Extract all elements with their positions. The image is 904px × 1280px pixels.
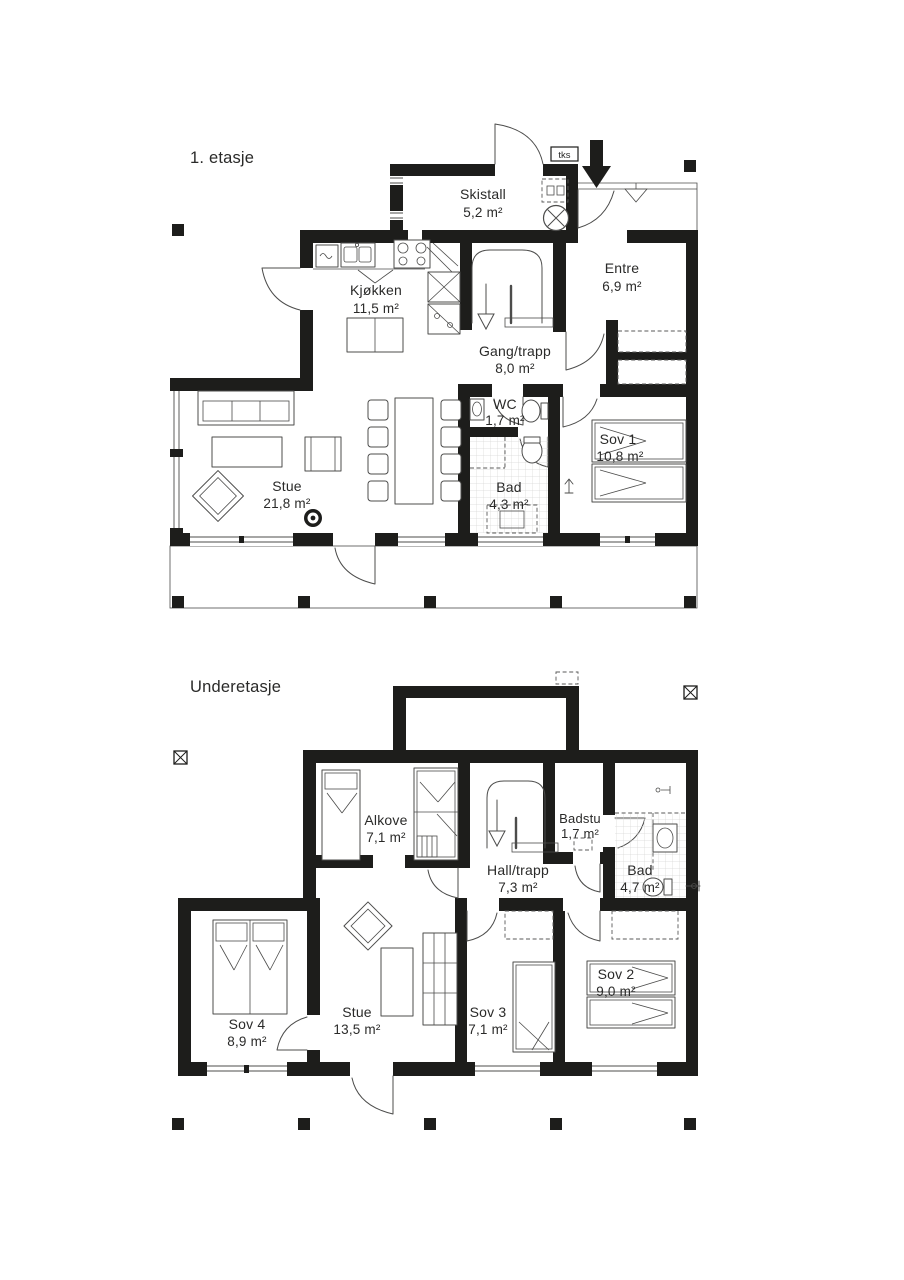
svg-text:Kjøkken: Kjøkken [350,282,402,298]
kitchen-sink-icon [341,243,375,267]
floor2-title: Underetasje [190,678,281,696]
floor2-plan: Underetasje [172,672,700,1130]
room-label-hall: Hall/trapp 7,3 m² [487,862,549,895]
svg-text:10,8 m²: 10,8 m² [596,449,643,464]
svg-text:11,5 m²: 11,5 m² [353,301,399,316]
sov3-bed [513,962,555,1052]
svg-text:13,5 m²: 13,5 m² [333,1022,380,1037]
armchair-icon [344,902,392,950]
svg-text:Gang/trapp: Gang/trapp [479,343,551,359]
sofa-icon [198,391,294,425]
room-label-badstu: Badstu 1,7 m² [559,811,601,841]
svg-text:tks: tks [558,150,570,161]
cabinet-symbol-icon [542,179,568,202]
dining-set [368,398,461,504]
stove-icon [394,240,430,268]
svg-text:Sov 1: Sov 1 [600,431,637,447]
stue-furniture [193,391,461,527]
tks-box: tks [551,147,578,161]
washbasin-icon [653,824,677,852]
floor1-plan: 1. etasje [170,124,698,608]
marker-crossed-square-icon [174,751,187,764]
floor1-entry-porch [578,183,697,230]
stair-down-arrow-icon [489,831,505,846]
entrance-arrow-icon [582,140,611,188]
table-icon [381,948,413,1016]
room-label-sov3: Sov 3 7,1 m² [468,1004,508,1037]
svg-text:21,8 m²: 21,8 m² [263,496,310,511]
svg-text:4,7 m²: 4,7 m² [620,880,660,895]
svg-text:Bad: Bad [627,862,653,878]
floor1-title: 1. etasje [190,149,254,167]
floor1-stairs [472,250,553,329]
floor1-terrace [170,546,697,608]
svg-text:Skistall: Skistall [460,186,506,202]
svg-text:8,9 m²: 8,9 m² [227,1034,267,1049]
svg-text:Stue: Stue [342,1004,372,1020]
tall-cabinets [428,272,460,334]
floor-plan-page: 1. etasje [0,0,904,1280]
svg-text:Bad: Bad [496,479,522,495]
arrow-up-icon [565,479,573,493]
svg-text:Entre: Entre [605,260,639,276]
dashed-marker [556,672,578,684]
coffee-table-icon [212,437,282,467]
floor2-wardrobes [505,911,678,939]
marker-crossed-square-icon [684,686,697,699]
svg-text:7,3 m²: 7,3 m² [498,880,538,895]
svg-text:1,7 m²: 1,7 m² [561,826,600,841]
kitchen-island [347,318,403,352]
svg-text:4,3 m²: 4,3 m² [489,497,529,512]
room-label-stue2: Stue 13,5 m² [333,1004,380,1037]
room-label-wc: WC 1,7 m² [485,396,525,428]
floor2-posts [172,1118,696,1130]
svg-text:Sov 2: Sov 2 [598,966,635,982]
svg-text:9,0 m²: 9,0 m² [596,984,636,999]
room-label-stue1: Stue 21,8 m² [263,478,310,511]
svg-text:Alkove: Alkove [364,812,407,828]
room-label-skistall: Skistall 5,2 m² [460,186,506,220]
room-label-alkove: Alkove 7,1 m² [364,812,407,845]
marker-square-icon [172,224,184,236]
shower-valve-icon [656,786,670,794]
sov4-bed [213,920,287,1014]
shelf-icon [423,933,457,1025]
wood-stove-icon [304,509,322,527]
svg-text:7,1 m²: 7,1 m² [366,830,406,845]
stair-down-arrow-icon [478,314,494,329]
svg-text:6,9 m²: 6,9 m² [602,279,642,294]
fan-icon [544,206,569,231]
svg-text:Stue: Stue [272,478,302,494]
svg-text:WC: WC [493,396,517,412]
svg-text:Sov 4: Sov 4 [229,1016,266,1032]
svg-text:5,2 m²: 5,2 m² [463,205,503,220]
room-label-kjokken: Kjøkken 11,5 m² [350,282,402,316]
floor-plan-drawing: 1. etasje [0,0,904,1280]
svg-text:Sov 3: Sov 3 [470,1004,507,1020]
svg-text:Hall/trapp: Hall/trapp [487,862,549,878]
armchair-icon [193,471,244,522]
svg-text:8,0 m²: 8,0 m² [495,361,535,376]
room-label-gang: Gang/trapp 8,0 m² [479,343,551,376]
marker-square-icon [684,160,696,172]
svg-text:1,7 m²: 1,7 m² [485,413,525,428]
bunk-bed-icon [414,768,458,860]
svg-text:7,1 m²: 7,1 m² [468,1022,508,1037]
side-chair-icon [305,437,341,471]
room-label-sov4: Sov 4 8,9 m² [227,1016,267,1049]
room-label-entre: Entre 6,9 m² [602,260,642,294]
svg-text:Badstu: Badstu [559,811,601,826]
